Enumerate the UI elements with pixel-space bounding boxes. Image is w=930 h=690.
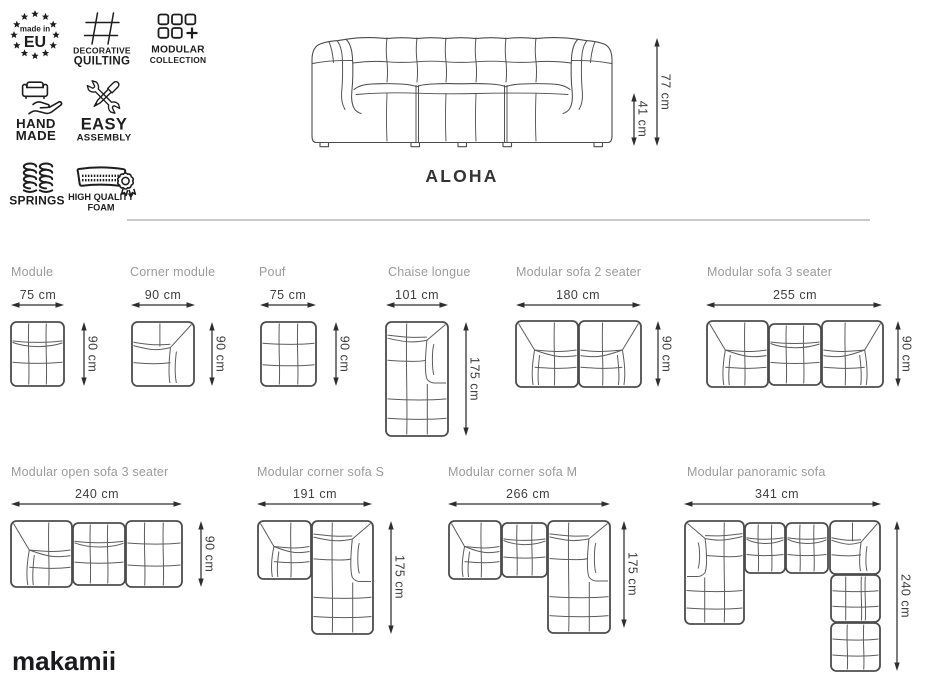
svg-text:COLLECTION: COLLECTION — [150, 55, 206, 65]
svg-text:ASSEMBLY: ASSEMBLY — [77, 133, 132, 144]
svg-text:Modular panoramic sofa: Modular panoramic sofa — [687, 465, 826, 479]
svg-text:240 cm: 240 cm — [75, 487, 119, 501]
svg-text:HIGH QUALITY: HIGH QUALITY — [68, 192, 134, 202]
svg-text:Module: Module — [11, 265, 53, 279]
svg-text:240 cm: 240 cm — [899, 574, 913, 618]
svg-text:266 cm: 266 cm — [506, 487, 550, 501]
svg-text:180 cm: 180 cm — [556, 288, 600, 302]
svg-text:Pouf: Pouf — [259, 265, 286, 279]
svg-text:175 cm: 175 cm — [393, 555, 407, 599]
svg-text:SPRINGS: SPRINGS — [9, 194, 64, 208]
svg-text:90 cm: 90 cm — [86, 336, 100, 373]
svg-text:QUILTING: QUILTING — [74, 56, 131, 68]
svg-text:Chaise longue: Chaise longue — [388, 265, 471, 279]
svg-text:ALOHA: ALOHA — [425, 166, 498, 186]
svg-text:75 cm: 75 cm — [20, 288, 57, 302]
svg-text:101 cm: 101 cm — [395, 288, 439, 302]
svg-text:Modular corner sofa M: Modular corner sofa M — [448, 465, 577, 479]
svg-text:Corner module: Corner module — [130, 265, 215, 279]
svg-text:Modular open sofa 3 seater: Modular open sofa 3 seater — [11, 465, 168, 479]
svg-text:Modular corner sofa S: Modular corner sofa S — [257, 465, 384, 479]
svg-text:90 cm: 90 cm — [203, 536, 217, 573]
svg-text:41 cm: 41 cm — [636, 101, 650, 138]
svg-text:90 cm: 90 cm — [338, 336, 352, 373]
svg-text:75 cm: 75 cm — [270, 288, 307, 302]
svg-text:77 cm: 77 cm — [659, 74, 673, 111]
svg-text:EU: EU — [24, 34, 46, 51]
svg-text:341 cm: 341 cm — [755, 487, 799, 501]
svg-text:EASY: EASY — [81, 116, 128, 134]
svg-text:90 cm: 90 cm — [145, 288, 182, 302]
svg-text:DECORATIVE: DECORATIVE — [73, 46, 131, 56]
svg-text:MADE: MADE — [16, 128, 56, 143]
svg-text:Modular sofa 2 seater: Modular sofa 2 seater — [516, 265, 641, 279]
svg-text:90 cm: 90 cm — [214, 336, 228, 373]
svg-text:FOAM: FOAM — [87, 203, 114, 213]
svg-text:191 cm: 191 cm — [293, 487, 337, 501]
svg-text:MODULAR: MODULAR — [151, 45, 205, 56]
svg-text:255 cm: 255 cm — [773, 288, 817, 302]
svg-text:90 cm: 90 cm — [660, 336, 674, 373]
svg-text:90 cm: 90 cm — [900, 336, 914, 373]
svg-text:175 cm: 175 cm — [468, 357, 482, 401]
svg-text:175 cm: 175 cm — [626, 552, 640, 596]
svg-text:made in: made in — [20, 25, 50, 34]
svg-text:makamii: makamii — [12, 646, 116, 676]
svg-text:Modular sofa 3 seater: Modular sofa 3 seater — [707, 265, 832, 279]
